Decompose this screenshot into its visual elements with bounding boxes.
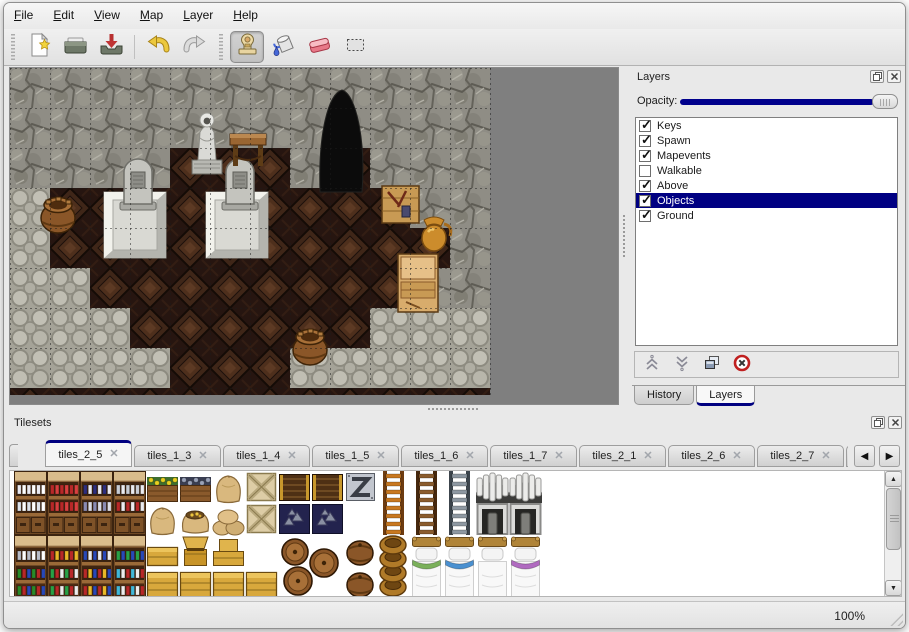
tileset-tile-shelfunit[interactable]: [15, 536, 47, 598]
tab-close-icon[interactable]: ✕: [376, 451, 385, 462]
tileset-tile-sack[interactable]: [217, 476, 241, 503]
opacity-slider-handle[interactable]: [872, 94, 898, 109]
fill-tool-icon: [270, 31, 297, 63]
redo-button[interactable]: [177, 31, 211, 63]
layer-row-spawn[interactable]: ✓Spawn: [636, 133, 897, 148]
tileset-tab-label: tiles_2_7: [770, 450, 814, 462]
layer-row-keys[interactable]: ✓Keys: [636, 118, 897, 133]
dock-tab-layers[interactable]: Layers: [696, 386, 755, 406]
tileset-tab-tiles_2_5[interactable]: tiles_2_5✕: [45, 440, 132, 467]
eraser-button[interactable]: [302, 31, 336, 63]
layers-dock-header: Layers: [628, 67, 905, 87]
layer-label: Walkable: [657, 165, 702, 177]
layer-visibility-checkbox[interactable]: ✓: [639, 195, 651, 207]
layer-label: Objects: [657, 195, 694, 207]
duplicate-layer-button[interactable]: [703, 354, 721, 375]
toolbar-drag-handle[interactable]: [11, 34, 15, 60]
tab-close-icon[interactable]: ✕: [821, 451, 830, 462]
tileset-tile-sackpile[interactable]: [213, 510, 244, 535]
open-button[interactable]: [58, 31, 92, 63]
layer-label: Mapevents: [657, 150, 711, 162]
layer-row-mapevents[interactable]: ✓Mapevents: [636, 148, 897, 163]
tileset-tile-bed[interactable]: [446, 537, 474, 597]
tileset-tile-bookcase[interactable]: [81, 472, 113, 535]
tileset-tab-tiles_1_3[interactable]: tiles_1_3✕: [134, 445, 221, 467]
menu-bar: FileEditViewMapLayerHelp: [4, 3, 905, 29]
clipped-tab-edge: [9, 444, 18, 467]
tileset-tab-tiles_2[interactable]: tiles_2✕: [846, 445, 848, 467]
scroll-up-icon[interactable]: ▲: [885, 471, 902, 487]
layer-row-walkable[interactable]: Walkable: [636, 163, 897, 178]
select-tool-icon: [342, 31, 369, 63]
tileset-tile-bookcase[interactable]: [15, 472, 47, 535]
select-button[interactable]: [338, 31, 372, 63]
tileset-tab-label: tiles_2_6: [681, 450, 725, 462]
resize-grip-icon[interactable]: [886, 609, 903, 626]
tab-close-icon[interactable]: ✕: [643, 451, 652, 462]
tileset-tile-goldchest[interactable]: [183, 537, 208, 566]
tileset-tile-slatcrate[interactable]: [280, 475, 310, 501]
tilesets-panel-title: Tilesets: [14, 417, 52, 429]
tab-close-icon[interactable]: ✕: [465, 451, 474, 462]
layers-dock: Layers Opacity: ✓Keys✓Spawn✓MapeventsWal…: [628, 67, 905, 405]
layer-label: Spawn: [657, 135, 691, 147]
map-object-crate: [382, 186, 419, 223]
opacity-row: Opacity:: [628, 92, 905, 112]
map-canvas[interactable]: [10, 68, 491, 395]
tilesets-dock: Tilesets tiles_2_5✕tiles_1_3✕tiles_1_4✕t…: [5, 413, 906, 600]
tileset-tile-bed[interactable]: [512, 537, 540, 597]
delete-layer-icon: [733, 363, 751, 375]
menu-layer[interactable]: Layer: [173, 3, 223, 22]
layer-label: Keys: [657, 120, 681, 132]
tileset-tile-sack[interactable]: [151, 508, 175, 535]
map-object-barrel: [41, 197, 75, 233]
tileset-tile-ladder[interactable]: [449, 471, 470, 535]
layer-list[interactable]: ✓Keys✓Spawn✓MapeventsWalkable✓Above✓Obje…: [635, 117, 898, 346]
tileset-tile-goldcrate[interactable]: [148, 573, 178, 598]
tileset-tab-label: tiles_1_4: [236, 450, 280, 462]
tab-close-icon[interactable]: ✕: [287, 451, 296, 462]
tileset-tile-shelfunit[interactable]: [81, 536, 113, 598]
app-window: FileEditViewMapLayerHelp Layers Opacity:…: [3, 2, 906, 629]
opacity-label: Opacity:: [637, 95, 677, 107]
move-down-button[interactable]: [673, 354, 691, 375]
tileset-tile-goldbox[interactable]: [214, 540, 244, 566]
layer-label: Ground: [657, 210, 694, 222]
tileset-tab-tiles_1_7[interactable]: tiles_1_7✕: [490, 445, 577, 467]
tilesets-dock-header: Tilesets: [5, 413, 906, 435]
save-button[interactable]: [94, 31, 128, 63]
tileset-tile-xcrate[interactable]: [248, 474, 276, 501]
tab-scroll-left-icon[interactable]: ◀: [854, 445, 875, 467]
tileset-tile-goldcrate[interactable]: [214, 573, 244, 598]
menu-help[interactable]: Help: [223, 3, 268, 22]
undo-button[interactable]: [141, 31, 175, 63]
menu-map[interactable]: Map: [130, 3, 173, 22]
vertical-splitter[interactable]: [620, 67, 628, 405]
redo-icon: [181, 31, 208, 63]
layer-row-ground[interactable]: ✓Ground: [636, 208, 897, 223]
undo-icon: [145, 31, 172, 63]
opacity-slider[interactable]: [680, 94, 898, 110]
tileset-tile-bed[interactable]: [413, 537, 441, 597]
stamp-button[interactable]: [230, 31, 264, 63]
tileset-tile-bed[interactable]: [479, 537, 507, 597]
tileset-tile-shelfunit[interactable]: [114, 536, 146, 598]
tileset-tab-label: tiles_1_3: [147, 450, 191, 462]
tileset-tab-tiles_1_5[interactable]: tiles_1_5✕: [312, 445, 399, 467]
tileset-tab-label: tiles_1_7: [503, 450, 547, 462]
new-file-icon: [26, 31, 53, 63]
tab-close-icon[interactable]: ✕: [732, 451, 741, 462]
tileset-vertical-scrollbar[interactable]: ▲ ▼: [884, 471, 901, 596]
tileset-tab-label: tiles_1_6: [414, 450, 458, 462]
tileset-tile-planter[interactable]: [180, 477, 211, 502]
tileset-tile-shelfunit[interactable]: [48, 536, 80, 598]
eraser-tool-icon: [306, 31, 333, 63]
close-panel-button[interactable]: [887, 70, 901, 83]
toolbar-drag-handle[interactable]: [219, 34, 223, 60]
toolbar: [4, 29, 905, 66]
layer-actions-toolbar: [634, 351, 899, 378]
status-bar: 100%: [4, 601, 905, 628]
tileset-tile-doorway[interactable]: [511, 504, 541, 534]
tab-close-icon[interactable]: ✕: [198, 451, 207, 462]
menu-edit[interactable]: Edit: [43, 3, 84, 22]
move-down-icon: [673, 363, 691, 375]
tab-close-icon[interactable]: ✕: [109, 449, 118, 460]
scroll-down-icon[interactable]: ▼: [885, 580, 902, 596]
tileset-tab-tiles_1_4[interactable]: tiles_1_4✕: [223, 445, 310, 467]
tileset-tab-bar: tiles_2_5✕tiles_1_3✕tiles_1_4✕tiles_1_5✕…: [5, 439, 906, 467]
tileset-tile-xcrate[interactable]: [248, 506, 276, 533]
map-viewport[interactable]: [9, 67, 619, 405]
layer-visibility-checkbox[interactable]: [639, 165, 651, 177]
duplicate-layer-icon: [703, 363, 721, 375]
float-panel-button[interactable]: [870, 70, 884, 83]
tileset-tab-tiles_2_6[interactable]: tiles_2_6✕: [668, 445, 755, 467]
layer-label: Above: [657, 180, 688, 192]
tileset-tile-arch[interactable]: [509, 473, 542, 503]
tileset-tile-ladder[interactable]: [383, 471, 404, 535]
layer-visibility-checkbox[interactable]: ✓: [639, 120, 651, 132]
tileset-tab-tiles_2_7[interactable]: tiles_2_7✕: [757, 445, 844, 467]
tileset-tile-arch[interactable]: [476, 473, 509, 503]
map-object-gravestone: [120, 159, 156, 210]
tileset-tile-goldcrate[interactable]: [181, 573, 211, 598]
toolbar-separator: [134, 35, 135, 59]
zoom-level: 100%: [834, 609, 865, 623]
opacity-slider-fill: [680, 99, 874, 105]
tileset-tile-barrelcluster[interactable]: [282, 539, 338, 595]
move-up-icon: [643, 363, 661, 375]
map-object-gravestone: [222, 159, 258, 210]
move-up-button[interactable]: [643, 354, 661, 375]
scrollbar-thumb[interactable]: [886, 488, 901, 550]
tab-scroll-right-icon[interactable]: ▶: [879, 445, 900, 467]
tileset-tile-sackopen[interactable]: [183, 511, 209, 533]
tileset-tile-planter[interactable]: [147, 477, 178, 502]
new-button[interactable]: [22, 31, 56, 63]
tileset-tile-bookcase[interactable]: [114, 472, 146, 535]
menu-view[interactable]: View: [84, 3, 130, 22]
menu-file[interactable]: File: [4, 3, 43, 22]
float-panel-button[interactable]: [871, 416, 885, 429]
layer-visibility-checkbox[interactable]: ✓: [639, 210, 651, 222]
tileset-tile-orepile[interactable]: [313, 505, 343, 534]
fill-button[interactable]: [266, 31, 300, 63]
layer-row-above[interactable]: ✓Above: [636, 178, 897, 193]
open-folder-icon: [62, 31, 89, 63]
map-object-cabinet: [398, 254, 438, 312]
tab-close-icon[interactable]: ✕: [554, 451, 563, 462]
tileset-tile-doorway[interactable]: [478, 504, 508, 534]
layer-visibility-checkbox[interactable]: ✓: [639, 135, 651, 147]
tileset-tile-potstack[interactable]: [380, 536, 406, 596]
save-icon: [98, 31, 125, 63]
tileset-tile-ladder[interactable]: [416, 471, 437, 535]
layer-row-objects[interactable]: ✓Objects: [636, 193, 897, 208]
dock-tab-history[interactable]: History: [634, 386, 694, 405]
tileset-tab-label: tiles_1_5: [325, 450, 369, 462]
stamp-tool-icon: [234, 31, 261, 63]
dock-bottom-tabs: HistoryLayers: [632, 385, 905, 409]
map-object-barrel: [293, 329, 327, 365]
close-panel-button[interactable]: [888, 416, 902, 429]
tileset-tile-sign[interactable]: [347, 474, 375, 501]
tileset-tile-slatcrate[interactable]: [313, 475, 343, 501]
tileset-tile-bookcase[interactable]: [48, 472, 80, 535]
tileset-tile-orepile[interactable]: [280, 505, 310, 534]
delete-layer-button[interactable]: [733, 354, 751, 375]
tileset-content[interactable]: ▲ ▼: [9, 470, 902, 597]
tileset-tile-barrel[interactable]: [347, 541, 373, 565]
tileset-tab-tiles_1_6[interactable]: tiles_1_6✕: [401, 445, 488, 467]
tileset-tab-label: tiles_2_5: [58, 449, 102, 461]
tileset-tab-tiles_2_1[interactable]: tiles_2_1✕: [579, 445, 666, 467]
tileset-tile-barrel[interactable]: [347, 573, 373, 597]
layers-panel-title: Layers: [637, 71, 670, 83]
tileset-canvas[interactable]: [14, 471, 554, 597]
tileset-tile-goldlow[interactable]: [148, 548, 178, 566]
tileset-tile-goldcrate[interactable]: [247, 573, 277, 598]
layer-visibility-checkbox[interactable]: ✓: [639, 150, 651, 162]
layer-visibility-checkbox[interactable]: ✓: [639, 180, 651, 192]
tileset-tab-label: tiles_2_1: [592, 450, 636, 462]
